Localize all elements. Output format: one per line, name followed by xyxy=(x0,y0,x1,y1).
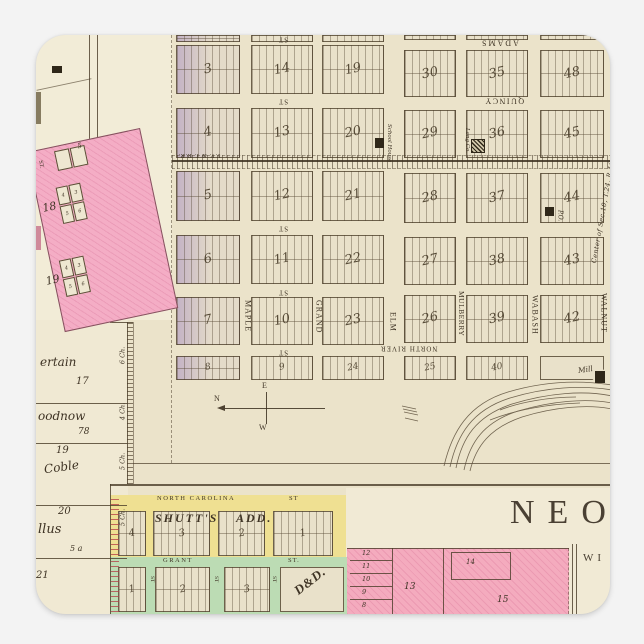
plat-block: 20 xyxy=(322,108,384,158)
compass-west: W xyxy=(259,423,267,432)
chain-label: 5 Ch. xyxy=(119,509,126,526)
lot-number: 5 xyxy=(68,284,72,291)
compass-north: N xyxy=(214,394,220,403)
parcel-label: 5 a xyxy=(70,545,82,553)
compass-line-vertical xyxy=(266,392,267,424)
map-plane: Y.V. & I. R.R. E N W xyxy=(36,35,610,614)
block-number: 3 xyxy=(202,61,213,77)
plat-block: 48 xyxy=(540,50,604,97)
block-number: 21 xyxy=(343,186,362,204)
parcel-label: 19 xyxy=(56,446,69,457)
lot-number: 3 xyxy=(74,189,78,196)
pink-lot-14: 14 xyxy=(466,559,475,566)
lot-line xyxy=(350,586,392,587)
right-road-line xyxy=(576,544,577,614)
lot-number: 10 xyxy=(362,576,370,583)
block-number: 22 xyxy=(343,250,362,268)
plat-west-boundary xyxy=(171,35,172,463)
pink-right-dashed xyxy=(568,548,569,614)
block-number: 27 xyxy=(420,251,439,269)
plat-block: 45 xyxy=(540,110,604,158)
block-number: 24 xyxy=(346,361,359,373)
nw-lot: 3 xyxy=(72,256,87,276)
block-number: 44 xyxy=(562,188,581,206)
street-label: WABASH xyxy=(530,295,538,335)
sticker-product-image: Y.V. & I. R.R. E N W xyxy=(0,0,644,644)
block-number: 4 xyxy=(202,124,213,140)
plat-block: 27 xyxy=(404,237,456,285)
plat-block: 14 xyxy=(251,45,313,94)
plat-block: 11 xyxy=(251,235,313,284)
edge-smudge xyxy=(36,92,41,124)
plat-block: 37 xyxy=(466,173,528,223)
grant-block: 3 xyxy=(224,567,270,612)
grant-block: 1 xyxy=(118,567,146,612)
block-number: 38 xyxy=(487,251,506,269)
lang-co-building xyxy=(471,139,485,153)
compass-line-horizontal xyxy=(225,408,325,409)
plat-block: 24 xyxy=(322,356,384,380)
plat-block: 29 xyxy=(404,110,456,158)
street-label: ELM xyxy=(388,312,396,332)
plat-block: 7 xyxy=(176,297,240,345)
plat-block: 30 xyxy=(404,50,456,97)
right-road-line xyxy=(572,544,573,614)
street-label: MULBERRY xyxy=(457,291,465,336)
street-label: WALNUT xyxy=(599,293,607,333)
block-number: 8 xyxy=(204,362,212,373)
block-number: 19 xyxy=(343,60,362,78)
plat-block: 39 xyxy=(466,295,528,343)
pink-lot-15: 15 xyxy=(497,596,508,605)
street-label: NORTH RIVER xyxy=(380,344,437,351)
block-number: 30 xyxy=(420,64,439,82)
green-edge-ticks xyxy=(111,559,119,612)
lot-number: 6 xyxy=(78,208,82,215)
plat-block: 28 xyxy=(404,173,456,223)
street-label-grant: GRANT xyxy=(163,558,193,565)
street-label: ADAMS xyxy=(480,38,519,46)
plat-block: 9 xyxy=(251,356,313,380)
pink-top-line xyxy=(347,548,569,549)
block-number: 45 xyxy=(562,124,581,142)
nw-lot: 6 xyxy=(72,201,87,221)
block-number: 19 xyxy=(45,273,61,287)
nw-addition: ST.5435618435619 xyxy=(36,128,178,332)
plat-block: 13 xyxy=(251,108,313,158)
lot-number: 5 xyxy=(65,211,69,218)
plat-block xyxy=(404,35,456,40)
parcel-label: 17 xyxy=(76,377,89,388)
plat-border-left-outer xyxy=(133,322,134,484)
lot-line xyxy=(350,573,392,574)
chain-label: 5 Ch. xyxy=(119,453,126,470)
parcel-label: 21 xyxy=(36,571,49,582)
parcel-label: Coble xyxy=(43,459,79,476)
street-label: MAPLE xyxy=(243,300,251,332)
plat-block: 5 xyxy=(176,171,240,221)
block-number: 11 xyxy=(272,250,291,268)
block-number: 3 xyxy=(177,527,186,539)
plat-block: 26 xyxy=(404,295,456,343)
plat-block: 10 xyxy=(251,297,313,345)
block-number: 5 xyxy=(202,187,213,203)
lot-line xyxy=(350,599,392,600)
street-label: ST xyxy=(278,288,288,295)
map-title: NEO xyxy=(510,495,610,531)
block-number: 13 xyxy=(272,123,291,141)
block-number: 1 xyxy=(299,527,308,539)
block-number: 26 xyxy=(420,309,439,327)
street-label: GRAND xyxy=(314,300,322,333)
street-label: ST xyxy=(212,576,218,582)
plat-block: 21 xyxy=(322,171,384,221)
parcel-label: 78 xyxy=(78,428,89,437)
pink-lot-13: 13 xyxy=(404,583,415,592)
nw-lot: 6 xyxy=(75,274,90,294)
parcel-label: ertain xyxy=(40,356,76,369)
plat-block: 35 xyxy=(466,50,528,97)
plat-block xyxy=(176,35,240,42)
street-label-north-carolina: NORTH CAROLINA xyxy=(157,496,235,503)
street-label: ST xyxy=(148,576,154,582)
plat-block: 6 xyxy=(176,235,240,284)
shutts-block: 1 xyxy=(273,511,333,556)
nw-lot: 3 xyxy=(68,183,83,203)
street-label-grant-st: ST. xyxy=(288,558,300,565)
lang-co-label: Lang Co. xyxy=(463,128,469,153)
lot-number: 12 xyxy=(362,550,370,557)
street-label: ST. xyxy=(37,160,45,169)
lot-line xyxy=(350,560,392,561)
shutts-add-suffix: ADD. xyxy=(236,512,272,525)
street-label: ST xyxy=(278,35,288,42)
street-label: ST xyxy=(278,97,288,104)
lot-number: 11 xyxy=(362,563,370,570)
block-number: 23 xyxy=(343,311,362,329)
lot-number: 4 xyxy=(61,192,65,199)
plat-block: 22 xyxy=(322,235,384,284)
block-number: 35 xyxy=(487,64,506,82)
street-label: QUINCY xyxy=(484,96,524,104)
block-number: 7 xyxy=(202,312,213,328)
post-office-building xyxy=(545,207,554,216)
block-number: 29 xyxy=(420,124,439,142)
mill-building xyxy=(595,371,605,383)
block-number: 20 xyxy=(343,123,362,141)
lot-number: 9 xyxy=(362,589,366,596)
block-number: 1 xyxy=(128,583,137,595)
compass-north-arrow xyxy=(217,405,225,411)
block-number: 36 xyxy=(487,124,506,142)
block-number: 43 xyxy=(562,251,581,269)
block-number: 39 xyxy=(487,309,506,327)
block-number: 48 xyxy=(562,64,581,82)
survey-line xyxy=(37,78,92,91)
plat-block: 23 xyxy=(322,297,384,345)
school-house-building xyxy=(375,138,384,148)
block-number: 9 xyxy=(278,362,286,373)
block-number: 18 xyxy=(41,200,57,214)
block-number: 6 xyxy=(202,251,213,267)
street-label: ST xyxy=(270,576,276,582)
plat-block: 38 xyxy=(466,237,528,285)
block-number: 3 xyxy=(243,583,252,595)
block-number: 2 xyxy=(237,527,246,539)
block-number: 28 xyxy=(420,188,439,206)
edge-smudge xyxy=(36,226,41,250)
block-number: 14 xyxy=(272,60,291,78)
compass-east: E xyxy=(262,381,267,390)
shutts-add-name: SHUTT'S xyxy=(155,512,218,525)
plat-block: 19 xyxy=(322,45,384,94)
street-label: ST xyxy=(278,224,288,231)
chain-scale-ticks xyxy=(127,322,133,484)
chain-label: 4 Ch. xyxy=(119,403,126,420)
lot-number: 6 xyxy=(81,281,85,288)
block-number: 37 xyxy=(487,188,506,206)
plat-block: 3 xyxy=(176,45,240,94)
school-house-label: School House xyxy=(385,124,391,162)
block-number: 2 xyxy=(178,583,187,595)
block-number: 12 xyxy=(272,186,291,204)
post-office-label: P.O. xyxy=(556,210,562,221)
block-number: 4 xyxy=(128,527,137,539)
river-illustration xyxy=(380,340,610,472)
plat-block: 12 xyxy=(251,171,313,221)
block-number: 42 xyxy=(562,309,581,327)
lot-number: 5 xyxy=(77,143,83,151)
block-number: 10 xyxy=(272,311,291,329)
plat-border-outer xyxy=(110,484,610,486)
pink-lot-14-box xyxy=(451,552,511,580)
plat-block xyxy=(322,35,384,42)
plat-block: 42 xyxy=(540,295,604,343)
lot-number: 8 xyxy=(362,602,366,609)
lot-number: 4 xyxy=(64,265,68,272)
street-label: ST xyxy=(278,348,288,355)
map-subtitle: WI xyxy=(583,553,605,565)
street-label-north-carolina-st: ST xyxy=(289,496,299,503)
parcel-line xyxy=(36,403,127,404)
plat-block: 8 xyxy=(176,356,240,380)
parcel-label: llus xyxy=(38,523,61,537)
building-mark xyxy=(52,66,62,73)
chain-label: 6 Ch. xyxy=(119,347,126,364)
pink-lot-divider xyxy=(392,548,393,614)
parcel-label: oodnow xyxy=(38,410,85,423)
railroad-label: Y.V. & I. R.R. xyxy=(178,151,221,158)
grant-block: 2 xyxy=(155,567,210,612)
plat-block xyxy=(540,35,604,40)
parcel-label: 20 xyxy=(58,507,71,518)
lot-number: 3 xyxy=(77,262,81,269)
pink-lot-divider xyxy=(443,548,444,614)
parcel-line xyxy=(36,443,127,444)
map-sticker: Y.V. & I. R.R. E N W xyxy=(36,35,610,614)
plat-border-corner xyxy=(110,322,133,323)
